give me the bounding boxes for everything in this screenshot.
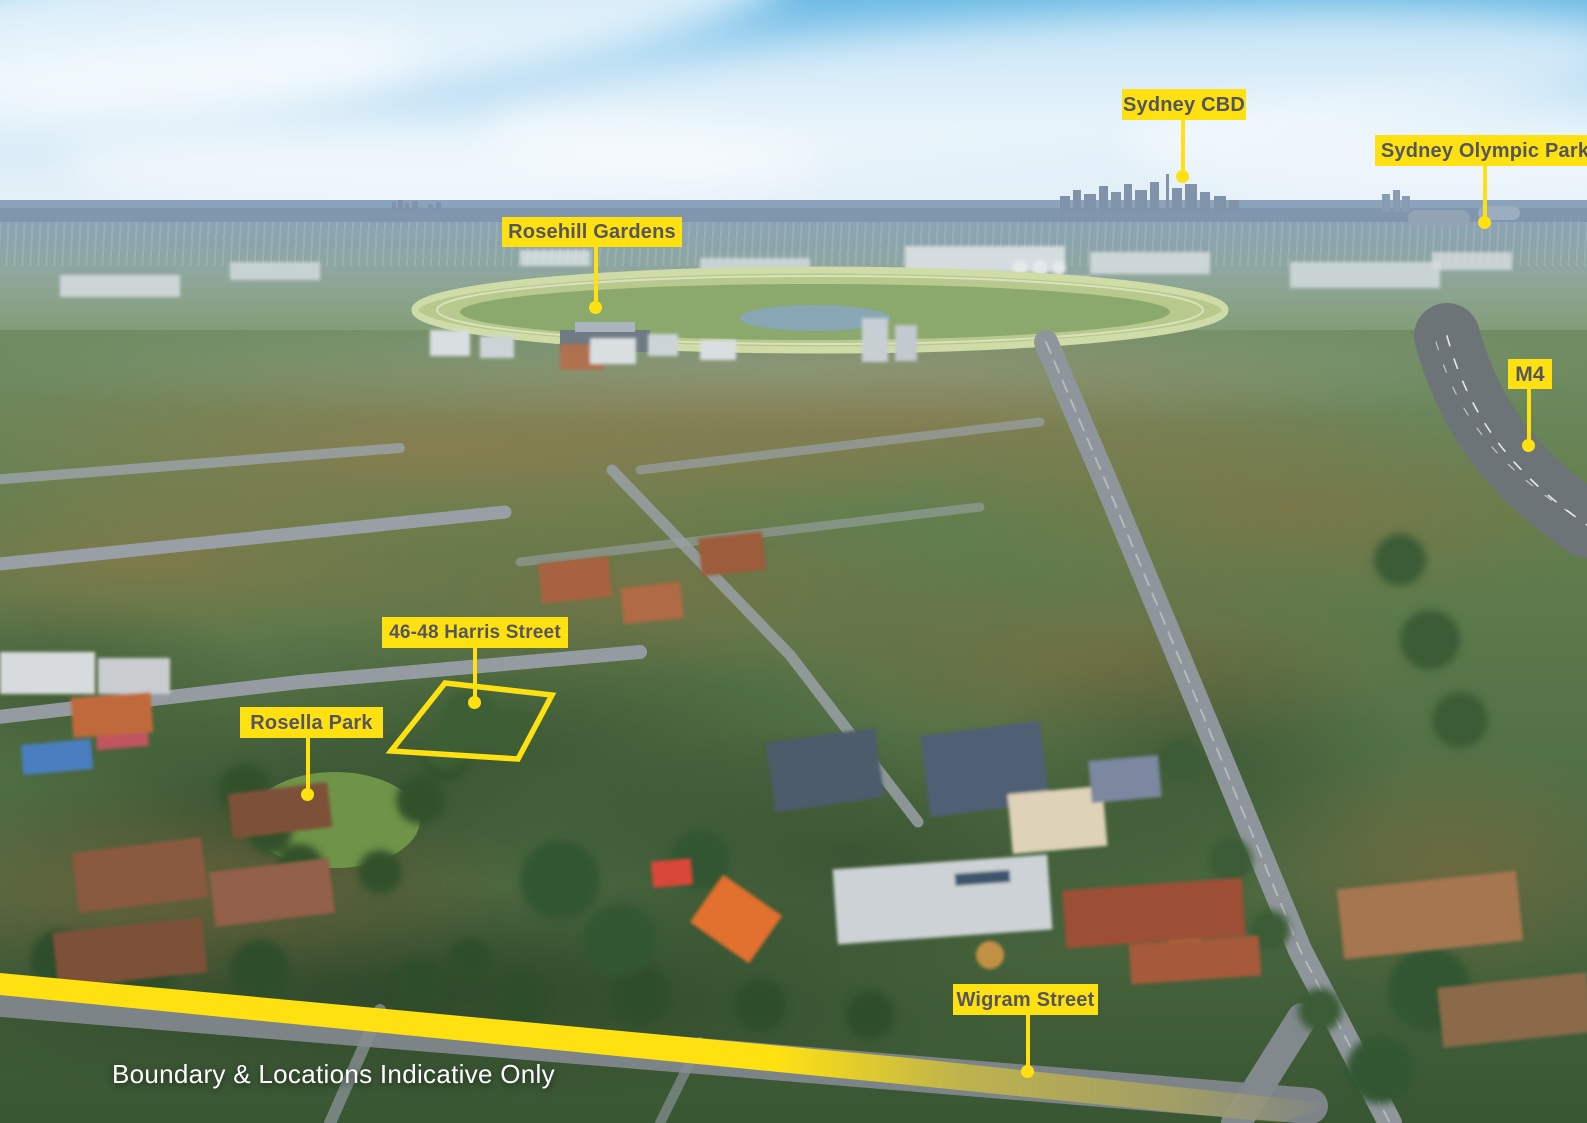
label-wigram-street: Wigram Street [953, 984, 1098, 1015]
leader-dot-sydney-cbd [1176, 170, 1189, 183]
label-rosehill-gardens: Rosehill Gardens [502, 217, 682, 247]
annotation-overlay [0, 0, 1587, 1123]
label-property-address: 46-48 Harris Street [382, 617, 568, 648]
leader-dot-property [468, 696, 481, 709]
leader-line-rosella-park [306, 738, 310, 790]
aerial-marketing-image: Sydney CBD Sydney Olympic Park Rosehill … [0, 0, 1587, 1123]
label-sydney-olympic-park: Sydney Olympic Park [1375, 135, 1587, 166]
leader-dot-wigram-street [1021, 1065, 1034, 1078]
property-boundary-outline [391, 683, 552, 759]
leader-dot-rosehill-gardens [589, 301, 602, 314]
wigram-street-highlight-line [0, 973, 1335, 1123]
leader-line-rosehill-gardens [594, 247, 598, 303]
leader-line-sydney-cbd [1181, 120, 1185, 172]
leader-line-wigram-street [1026, 1015, 1030, 1067]
label-sydney-cbd: Sydney CBD [1122, 89, 1246, 120]
disclaimer-text: Boundary & Locations Indicative Only [112, 1059, 555, 1090]
leader-dot-rosella-park [301, 788, 314, 801]
leader-dot-m4 [1522, 439, 1535, 452]
label-m4: M4 [1508, 359, 1552, 389]
label-rosella-park: Rosella Park [240, 707, 383, 738]
leader-line-m4 [1527, 389, 1531, 441]
leader-dot-sydney-olympic-park [1478, 216, 1491, 229]
leader-line-sydney-olympic-park [1483, 166, 1487, 218]
leader-line-property [473, 648, 477, 698]
